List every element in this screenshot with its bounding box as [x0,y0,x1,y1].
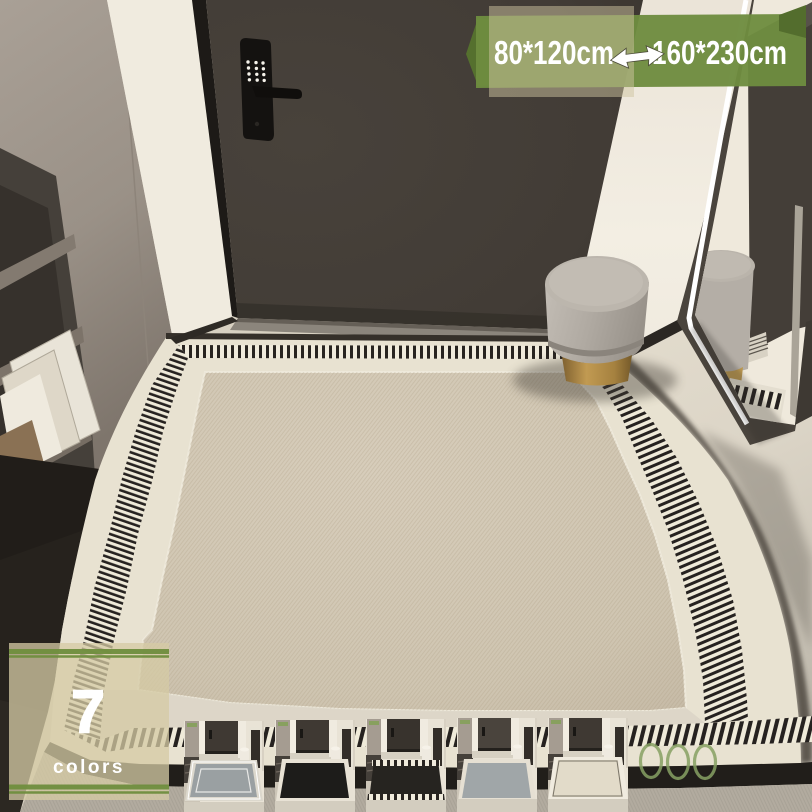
svg-text:colors: colors [53,757,125,778]
svg-text:80*120cm: 80*120cm [494,34,614,71]
svg-text:7: 7 [71,678,104,745]
svg-text:160*230cm: 160*230cm [652,34,787,71]
